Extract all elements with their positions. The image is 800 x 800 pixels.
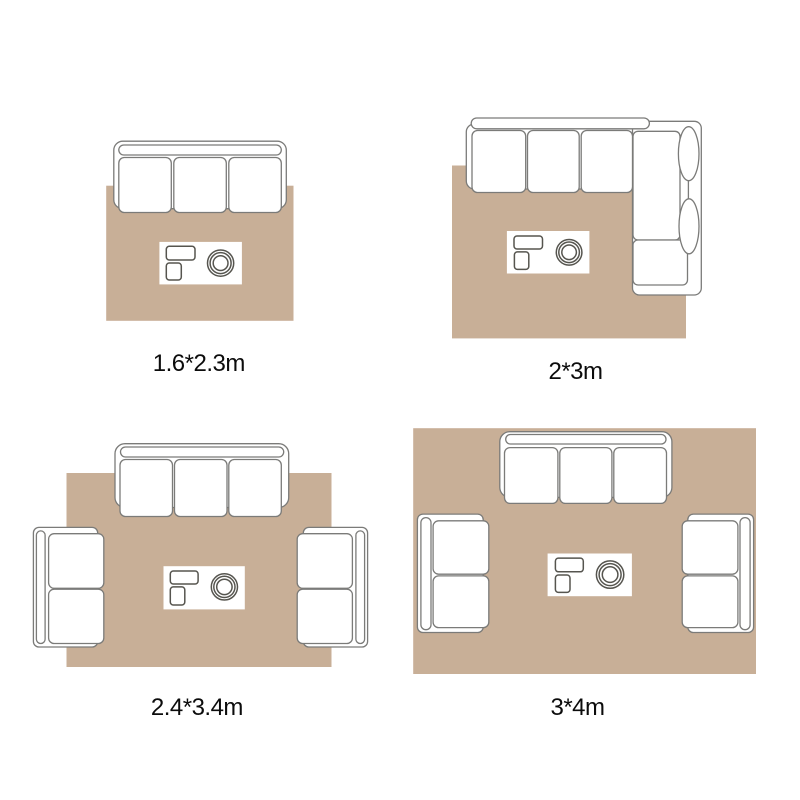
svg-text:1.6*2.3m: 1.6*2.3m: [153, 350, 245, 377]
svg-text:2.4*3.4m: 2.4*3.4m: [151, 694, 243, 721]
svg-text:2*3m: 2*3m: [548, 358, 602, 385]
svg-text:3*4m: 3*4m: [550, 694, 604, 721]
